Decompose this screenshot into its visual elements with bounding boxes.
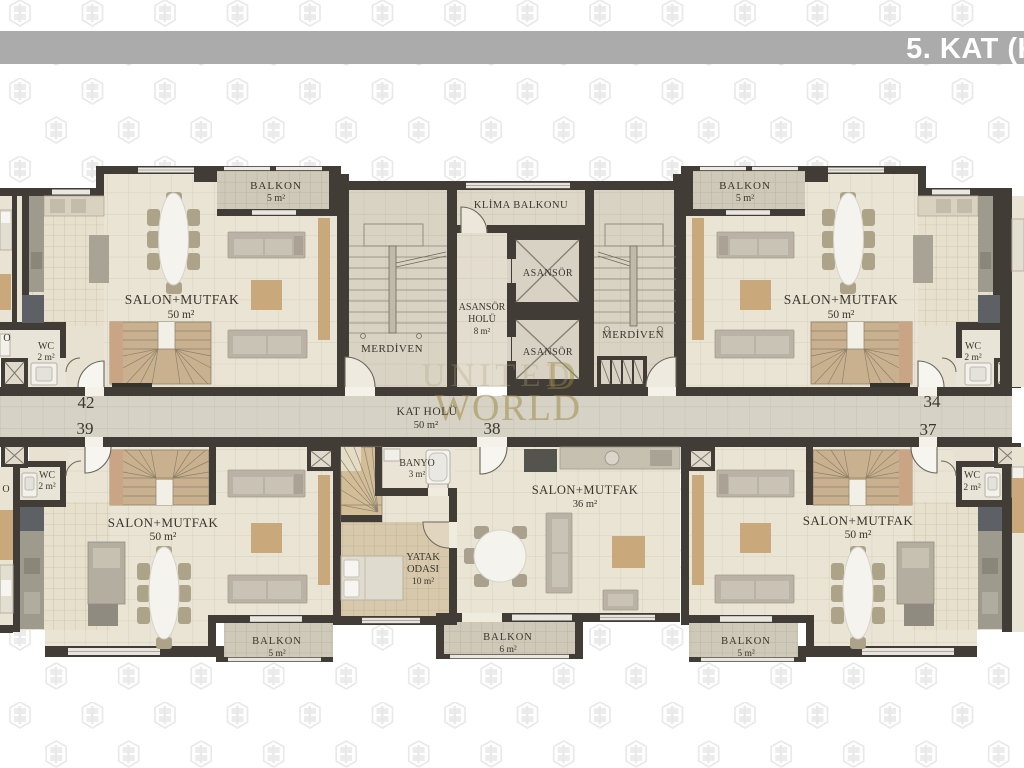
svg-text:BANYO: BANYO — [399, 458, 435, 469]
svg-text:BALKON: BALKON — [719, 180, 771, 192]
svg-text:3 m²: 3 m² — [409, 469, 426, 479]
svg-text:ODASI: ODASI — [407, 564, 440, 575]
svg-text:MERDİVEN: MERDİVEN — [361, 343, 423, 355]
svg-text:SALON+MUTFAK: SALON+MUTFAK — [803, 513, 914, 528]
svg-text:42: 42 — [78, 393, 95, 412]
svg-text:ASANSÖR: ASANSÖR — [459, 301, 506, 313]
svg-text:KAT HOLÜ: KAT HOLÜ — [397, 404, 458, 418]
svg-text:BALKON: BALKON — [252, 636, 302, 647]
svg-text:10 m²: 10 m² — [412, 577, 434, 587]
svg-text:2 m²: 2 m² — [37, 353, 55, 363]
svg-text:BALKON: BALKON — [250, 180, 302, 192]
svg-text:SALON+MUTFAK: SALON+MUTFAK — [532, 483, 639, 497]
svg-text:ASANSÖR: ASANSÖR — [523, 267, 573, 279]
svg-text:KLİMA BALKONU: KLİMA BALKONU — [474, 199, 568, 211]
svg-text:36 m²: 36 m² — [573, 499, 597, 510]
svg-text:O: O — [3, 333, 10, 344]
svg-text:5. KAT (K: 5. KAT (K — [906, 33, 1024, 65]
svg-text:2 m²: 2 m² — [963, 483, 981, 493]
svg-text:HOLÜ: HOLÜ — [468, 313, 497, 325]
svg-text:5 m²: 5 m² — [736, 193, 754, 204]
svg-text:BALKON: BALKON — [721, 636, 771, 647]
svg-text:WC: WC — [965, 341, 981, 352]
svg-text:50 m²: 50 m² — [414, 420, 438, 431]
svg-text:2 m²: 2 m² — [964, 353, 982, 363]
svg-text:50 m²: 50 m² — [168, 309, 195, 321]
svg-text:50 m²: 50 m² — [150, 531, 177, 543]
svg-text:ASANSÖR: ASANSÖR — [523, 346, 573, 358]
svg-text:37: 37 — [920, 420, 938, 439]
svg-text:WC: WC — [964, 470, 980, 481]
svg-text:8 m²: 8 m² — [474, 326, 491, 336]
svg-text:WC: WC — [39, 470, 55, 481]
svg-text:5 m²: 5 m² — [268, 649, 286, 659]
svg-text:SALON+MUTFAK: SALON+MUTFAK — [108, 515, 219, 530]
svg-text:5 m²: 5 m² — [267, 193, 285, 204]
svg-text:34: 34 — [924, 392, 942, 411]
svg-text:39: 39 — [77, 419, 94, 438]
svg-text:SALON+MUTFAK: SALON+MUTFAK — [125, 292, 240, 307]
svg-text:50 m²: 50 m² — [845, 529, 872, 541]
svg-text:O: O — [2, 484, 9, 495]
svg-text:5 m²: 5 m² — [737, 649, 755, 659]
svg-text:38: 38 — [484, 419, 501, 438]
svg-text:WC: WC — [38, 341, 54, 352]
svg-text:SALON+MUTFAK: SALON+MUTFAK — [784, 292, 899, 307]
svg-text:6 m²: 6 m² — [499, 645, 517, 655]
svg-text:BALKON: BALKON — [483, 632, 533, 643]
svg-text:2 m²: 2 m² — [38, 482, 56, 492]
svg-text:YATAK: YATAK — [406, 552, 440, 563]
svg-text:50 m²: 50 m² — [828, 309, 855, 321]
svg-text:MERDİVEN: MERDİVEN — [602, 329, 664, 341]
